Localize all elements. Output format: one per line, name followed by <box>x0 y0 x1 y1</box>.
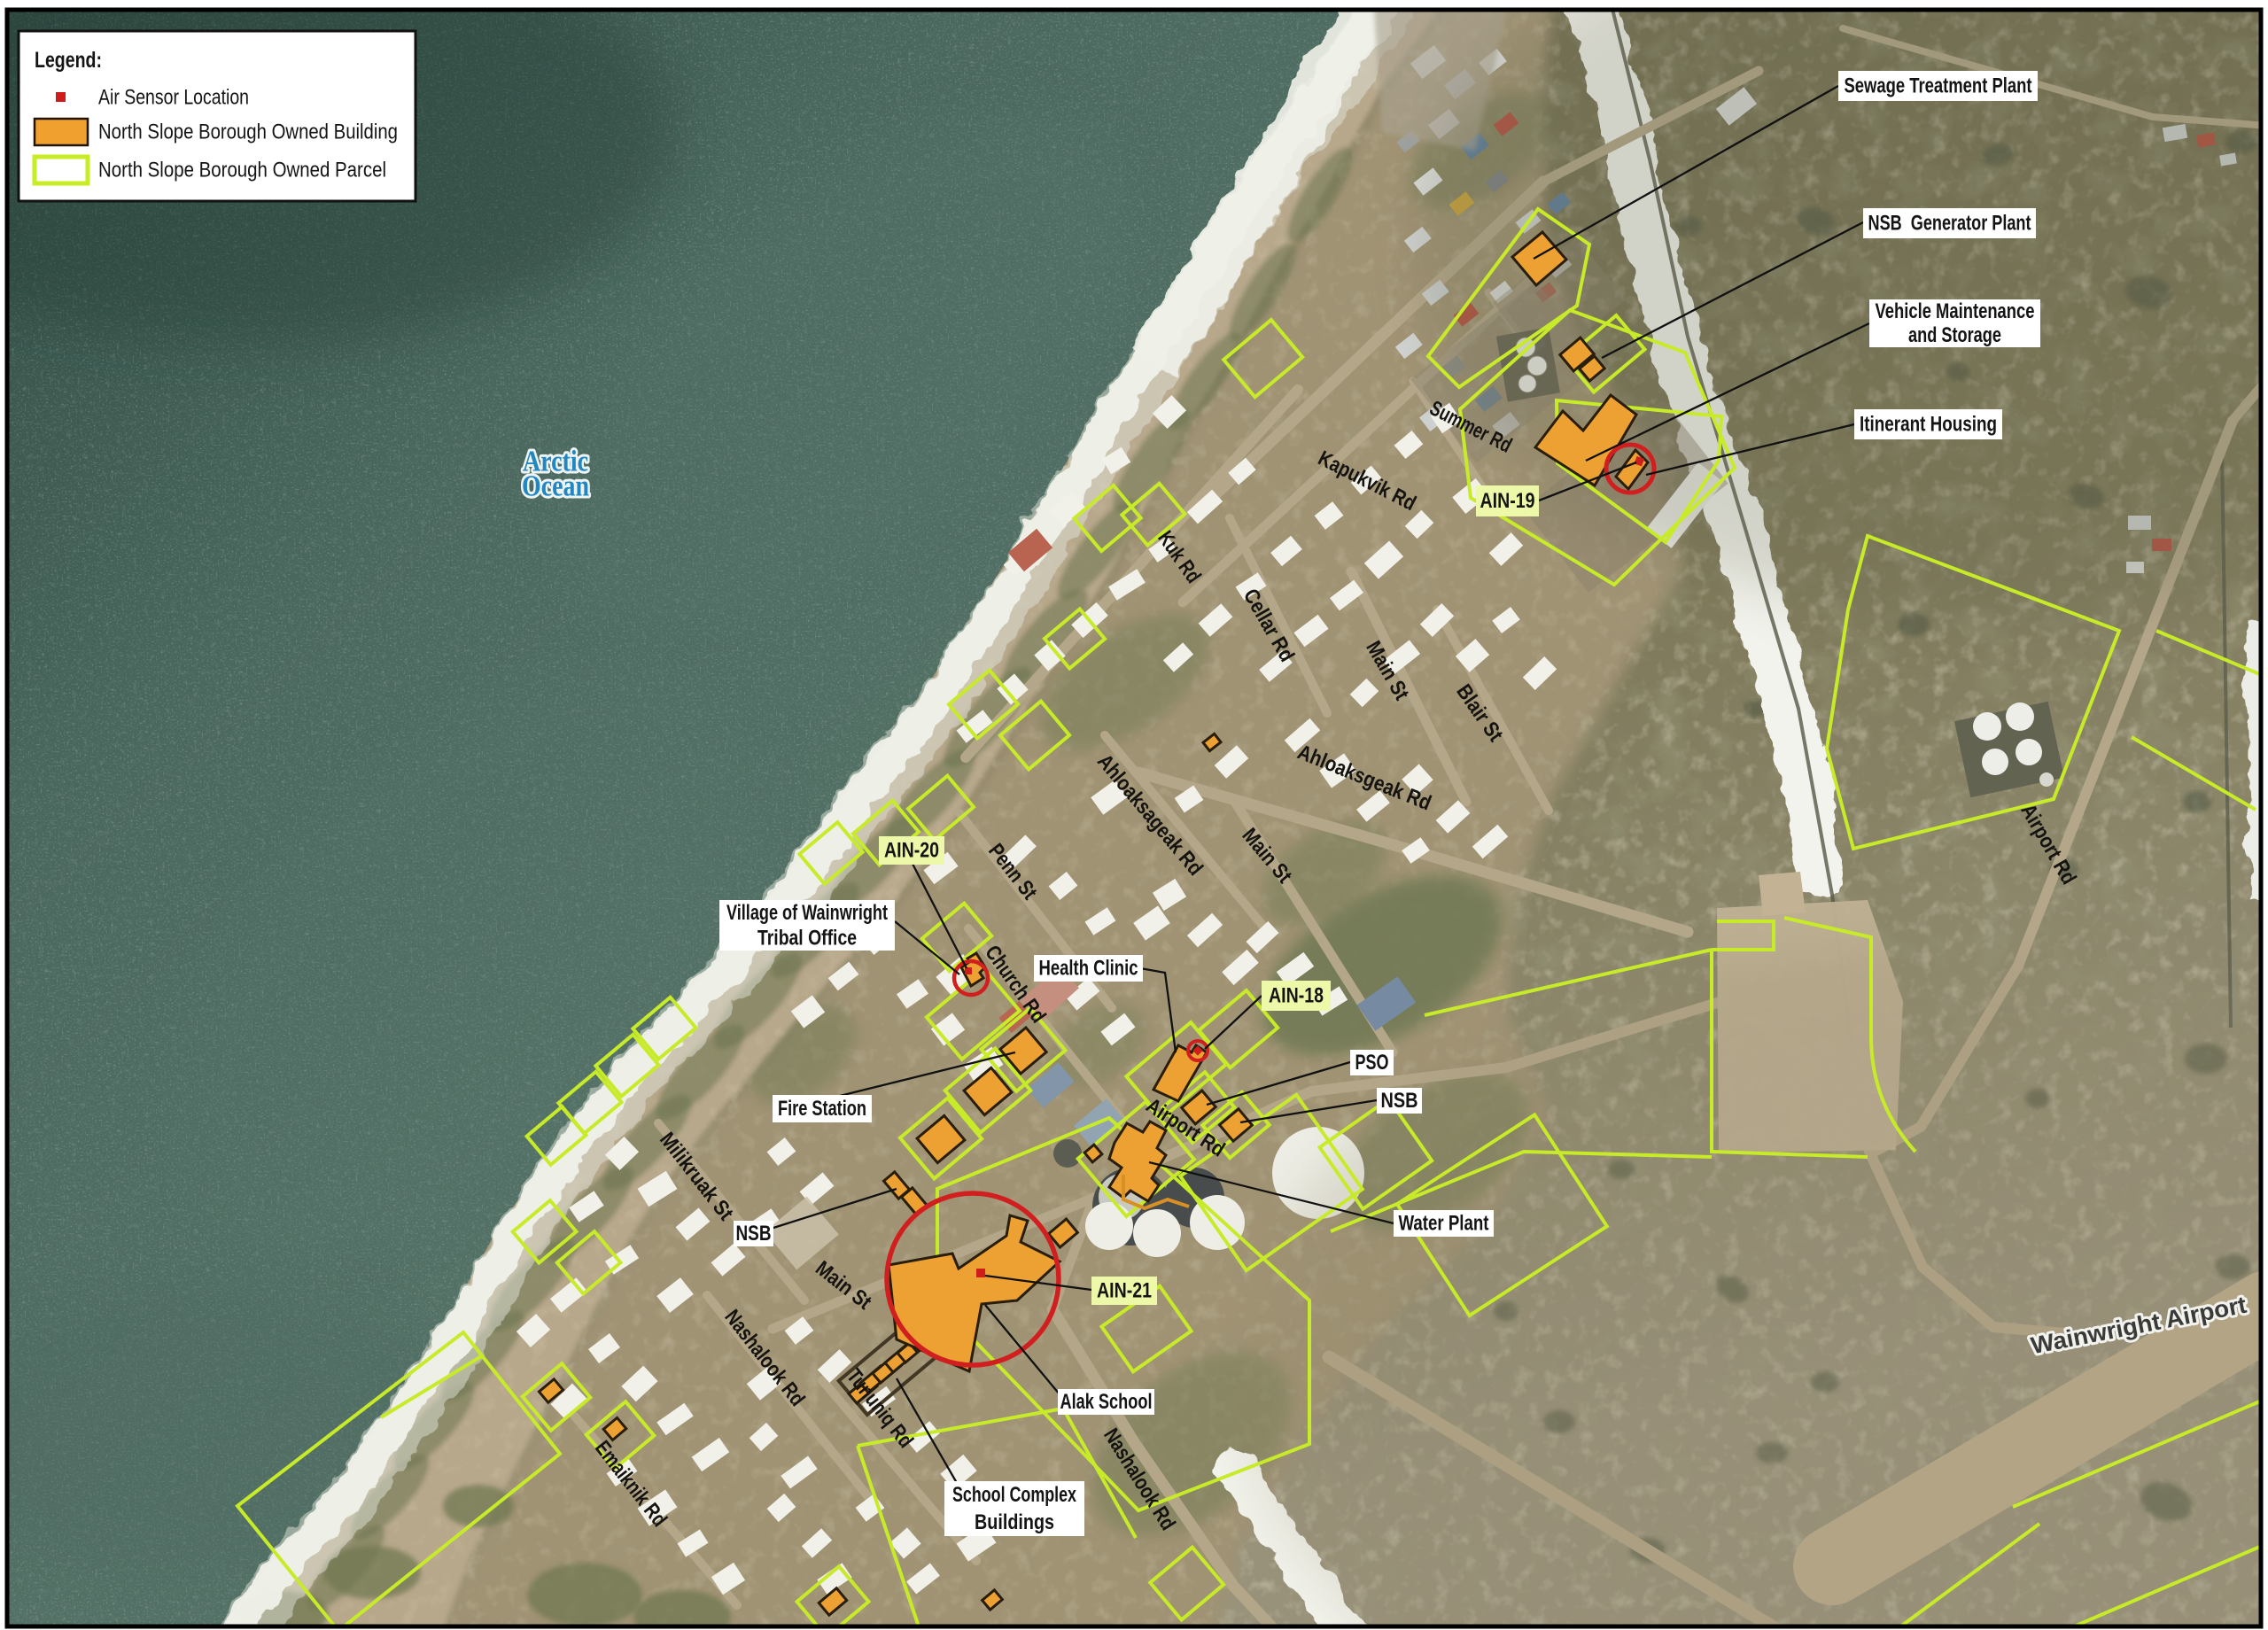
svg-text:Health Clinic: Health Clinic <box>1039 957 1138 981</box>
svg-text:AIN-19: AIN-19 <box>1480 489 1535 513</box>
svg-text:Legend:: Legend: <box>35 48 102 73</box>
svg-text:Ocean: Ocean <box>522 470 589 503</box>
svg-text:and Storage: and Storage <box>1908 323 2001 347</box>
svg-text:Village of Wainwright: Village of Wainwright <box>726 901 888 925</box>
svg-text:Fire Station: Fire Station <box>778 1097 866 1121</box>
svg-text:Vehicle Maintenance: Vehicle Maintenance <box>1876 299 2035 323</box>
svg-text:Alak School: Alak School <box>1060 1390 1153 1414</box>
svg-text:PSO: PSO <box>1355 1051 1389 1075</box>
svg-text:Buildings: Buildings <box>975 1510 1054 1534</box>
svg-text:North Slope Borough Owned Parc: North Slope Borough Owned Parcel <box>98 159 386 182</box>
svg-text:Air Sensor Location: Air Sensor Location <box>98 86 249 110</box>
svg-text:Itinerant Housing: Itinerant Housing <box>1860 413 1997 437</box>
svg-text:AIN-20: AIN-20 <box>884 839 939 863</box>
svg-text:AIN-18: AIN-18 <box>1269 984 1324 1008</box>
svg-text:NSB: NSB <box>1381 1089 1418 1113</box>
svg-text:Tribal Office: Tribal Office <box>757 926 857 950</box>
svg-text:Water Plant: Water Plant <box>1399 1212 1489 1236</box>
svg-text:NSB: NSB <box>736 1222 772 1246</box>
svg-text:NSB Generator Plant: NSB Generator Plant <box>1868 212 2031 236</box>
svg-text:Sewage Treatment Plant: Sewage Treatment Plant <box>1845 74 2032 98</box>
svg-text:School Complex: School Complex <box>952 1483 1076 1507</box>
svg-text:AIN-21: AIN-21 <box>1097 1279 1152 1303</box>
svg-text:North Slope Borough Owned Buil: North Slope Borough Owned Building <box>98 120 398 144</box>
